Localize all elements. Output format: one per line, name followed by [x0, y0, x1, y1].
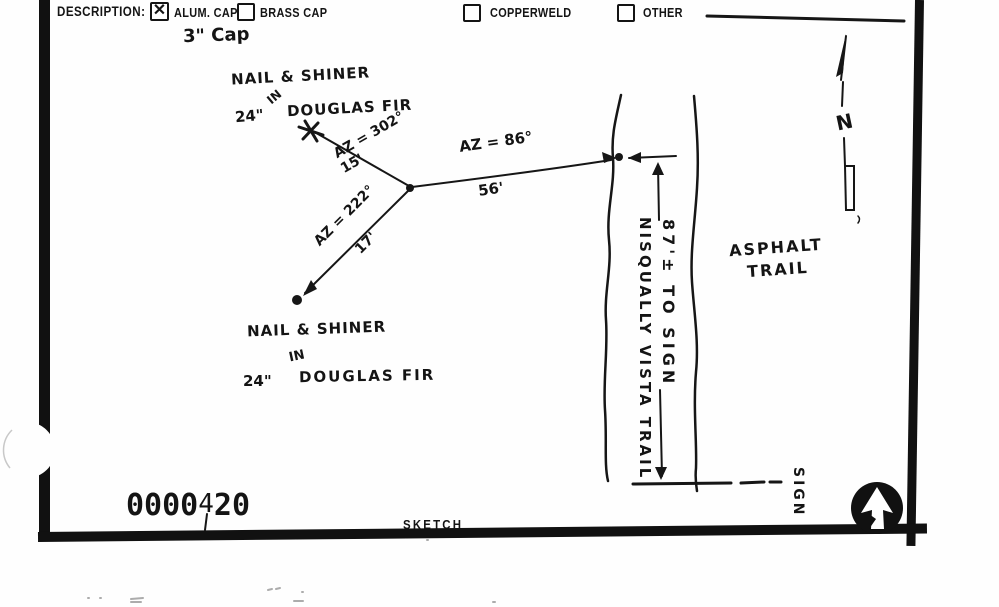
sign-label: SIGN: [790, 467, 806, 518]
tree-south-label-line2: IN: [288, 348, 306, 366]
distance-e-label: 56': [477, 178, 505, 199]
tree-south-species: DOUGLAS FIR: [299, 366, 436, 386]
option-label-alum-cap: ALUM. CAP: [174, 5, 238, 20]
stamp-number-mid: 4: [198, 489, 214, 519]
option-label-other: OTHER: [643, 5, 683, 20]
trail-name-label: NISQUALLY VISTA TRAIL: [636, 217, 654, 480]
cap-size-note: 3" Cap: [183, 24, 250, 47]
description-label: DESCRIPTION:: [57, 4, 145, 19]
trail-edge-right: [692, 96, 698, 491]
sign-base-line: [633, 482, 781, 484]
checkbox-brass-cap[interactable]: [237, 3, 255, 21]
section-label-sketch: SKETCH: [403, 517, 463, 532]
tree-symbol-north: [299, 121, 323, 141]
monument-point: [406, 184, 414, 192]
stamp-number: 0000420: [126, 488, 250, 523]
trail-edge-left: [605, 95, 621, 481]
hole-punch-artifact: [0, 422, 55, 478]
other-blank-line: [707, 16, 904, 21]
tree-north-size: 24": [234, 106, 264, 126]
tree-south-size: 24": [243, 372, 272, 390]
checkbox-other[interactable]: [617, 4, 635, 22]
option-label-brass-cap: BRASS CAP: [260, 5, 327, 20]
checkbox-alum-cap[interactable]: ✕: [150, 2, 169, 21]
checkbox-check-mark: ✕: [153, 3, 166, 19]
tie-line-e: [412, 160, 611, 187]
stamp-number-suffix: 20: [214, 488, 250, 523]
scan-noise-marks: [88, 540, 495, 602]
compass-north-icon: [851, 482, 903, 534]
checkbox-copperweld[interactable]: [463, 4, 481, 22]
option-label-copperweld: COPPERWELD: [490, 5, 571, 20]
stamp-number-prefix: 0000: [126, 488, 198, 523]
dimension-to-sign-label: 87'± TO SIGN: [659, 219, 678, 387]
scanned-monument-record-sketch: DESCRIPTION: ✕ ALUM. CAP BRASS CAP COPPE…: [0, 0, 999, 607]
